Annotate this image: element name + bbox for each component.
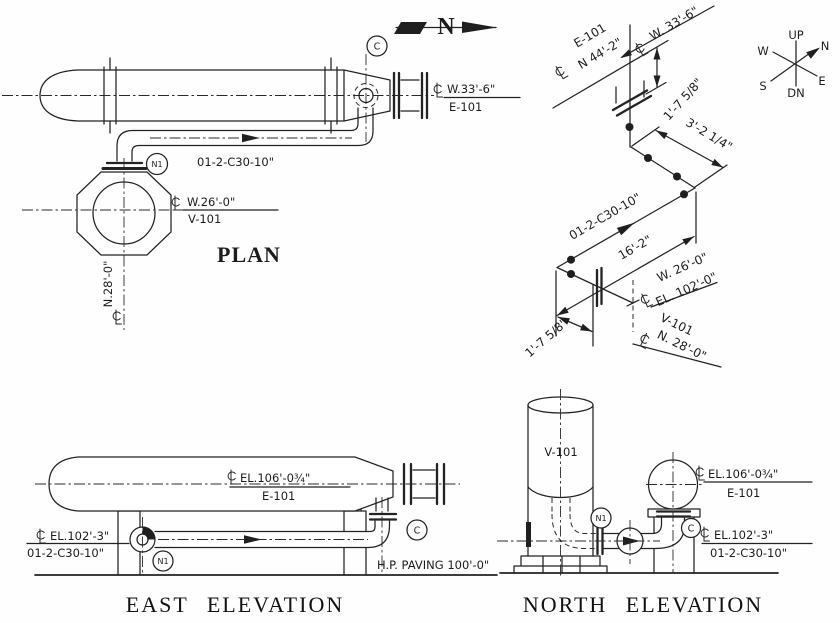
c-nozzle-flange bbox=[657, 512, 690, 517]
compass-up-label: UP bbox=[788, 28, 803, 42]
balloon-n1-label: N1 bbox=[151, 160, 162, 169]
compass-down-label: DN bbox=[787, 86, 804, 100]
centerline-symbol bbox=[172, 196, 180, 210]
pipe-edge-outer bbox=[117, 108, 358, 161]
flow-arrow bbox=[617, 223, 635, 236]
dim-ext-line bbox=[646, 83, 666, 95]
paving-label: H.P. PAVING 100'-0" bbox=[377, 558, 489, 572]
compass-rose: W UP N S DN E bbox=[757, 28, 829, 100]
centerline-symbol bbox=[639, 292, 652, 308]
compass-north-arrowhead bbox=[806, 48, 820, 59]
centerline-symbol bbox=[696, 466, 704, 480]
iso-pipe-line-number: 01-2-C30-10" bbox=[567, 190, 644, 242]
weld-dot bbox=[673, 173, 681, 181]
north-arrow-tail bbox=[394, 22, 427, 34]
iso-east-dimension: 3'-2 1/4" bbox=[683, 115, 734, 154]
e101-elevation-label: EL.106'-0¾" bbox=[708, 467, 778, 481]
compass-east-label: E bbox=[818, 74, 825, 88]
compass-south-label: S bbox=[759, 79, 766, 93]
compass-west-label: W bbox=[757, 44, 768, 58]
e101-coordinate-label: W.33'-6" bbox=[447, 82, 495, 96]
north-elevation-view: N1 C V-101 EL.106'-0¾" E-101 EL.102'-3" … bbox=[497, 389, 812, 617]
balloon-n1-label: N1 bbox=[157, 557, 168, 566]
pipe-line-number: 01-2-C30-10" bbox=[710, 546, 787, 560]
weld-dot bbox=[644, 154, 652, 162]
centerline-symbol bbox=[434, 83, 442, 97]
e101-tag-label: E-101 bbox=[727, 486, 760, 500]
plan-title: PLAN bbox=[217, 242, 281, 267]
weld-dot bbox=[680, 190, 688, 198]
v101-coordinate-label: W.26'-0" bbox=[187, 195, 235, 209]
centerline-symbol bbox=[113, 310, 121, 324]
iso-east-offset-segment bbox=[631, 147, 695, 188]
north-arrow-icon: N bbox=[394, 14, 497, 40]
iso-run-dimension: 16'-2" bbox=[616, 232, 654, 262]
centerline-symbol bbox=[37, 529, 45, 543]
drawing-canvas: N W UP N S DN E C bbox=[0, 0, 840, 623]
north-arrow-head bbox=[462, 22, 497, 34]
balloon-n1-label: N1 bbox=[595, 514, 606, 523]
balloon-c-label: C bbox=[688, 524, 695, 535]
piping-drawing-sheet: N W UP N S DN E C bbox=[0, 0, 840, 623]
pipe-body-fill bbox=[155, 521, 390, 548]
iso-drop-dimension: 1'-7 5/8" bbox=[661, 75, 706, 123]
pipe-line-number: 01-2-C30-10" bbox=[197, 155, 274, 169]
north-elevation-title: NORTH ELEVATION bbox=[523, 592, 763, 617]
compass-north-label: N bbox=[821, 39, 830, 53]
v101-tag-label: V-101 bbox=[188, 212, 221, 226]
pipe-elevation-label: EL.102'-3" bbox=[50, 529, 109, 543]
iso-e101-west-coord: W. 33'-6" bbox=[647, 4, 701, 44]
east-elevation-view: N1 C EL.102'-3" 01-2-C30-10" EL.106'-0¾"… bbox=[27, 457, 497, 617]
east-elevation-title: EAST ELEVATION bbox=[126, 592, 344, 617]
v101-north-coordinate-label: N.28'-0" bbox=[101, 261, 115, 308]
weld-dot bbox=[626, 123, 634, 131]
pipe-elevation-label: EL.102'-3" bbox=[714, 528, 773, 542]
balloon-c-label: C bbox=[414, 526, 421, 537]
flow-arrow bbox=[242, 134, 260, 142]
pipe-line-number: 01-2-C30-10" bbox=[27, 546, 104, 560]
plan-view: C N1 W.33'-6" E-101 01-2-C30-10" W.26'-0… bbox=[2, 36, 520, 330]
e101-tag-label: E-101 bbox=[262, 489, 295, 503]
v101-tag-label: V-101 bbox=[544, 445, 577, 459]
weld-dot bbox=[567, 270, 575, 278]
iso-riser-dimension: 1'-7 5/8" bbox=[522, 316, 570, 360]
v101-clip-mark bbox=[526, 522, 531, 547]
compass-sn-axis bbox=[771, 53, 810, 81]
centerline-symbol bbox=[554, 64, 568, 80]
e101-tag-label: E-101 bbox=[449, 100, 482, 114]
e101-elevation-label: EL.106'-0¾" bbox=[240, 471, 310, 485]
weld-dot bbox=[567, 256, 575, 264]
c-nozzle-flange bbox=[370, 514, 396, 520]
centerline-symbol bbox=[701, 527, 709, 541]
iso-top-flange bbox=[613, 91, 651, 116]
balloon-c-label: C bbox=[374, 42, 381, 53]
isometric-view: E-101 N 44'-2" W. 33'-6" 1'-7 5/8" 3'-2 … bbox=[522, 4, 734, 367]
north-arrow-label: N bbox=[437, 14, 455, 40]
